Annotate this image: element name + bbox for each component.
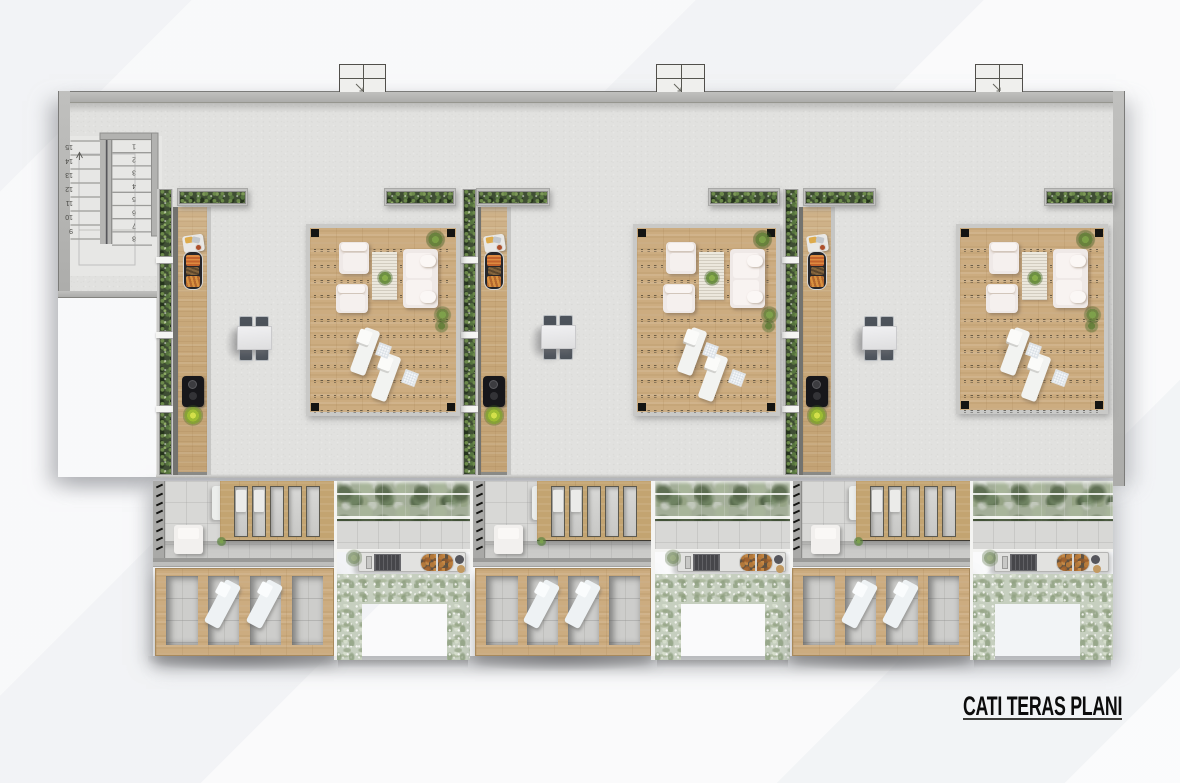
svg-text:12: 12 (65, 185, 73, 192)
svg-text:14: 14 (65, 157, 73, 164)
svg-text:11: 11 (66, 199, 73, 206)
svg-text:10: 10 (65, 213, 73, 220)
svg-text:1: 1 (132, 142, 136, 149)
svg-text:15: 15 (65, 143, 73, 150)
svg-text:9: 9 (69, 227, 73, 234)
svg-text:13: 13 (65, 171, 73, 178)
